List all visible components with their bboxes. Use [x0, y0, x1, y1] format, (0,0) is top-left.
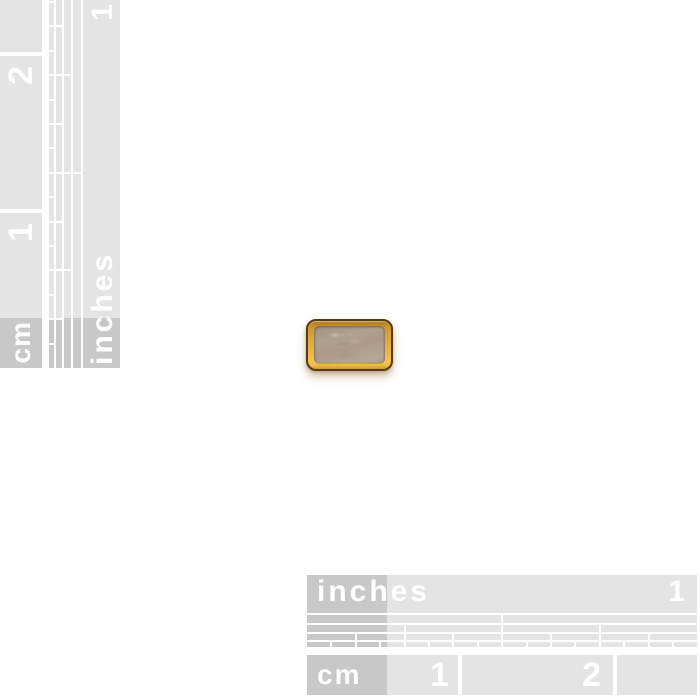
tick-mark	[49, 221, 64, 223]
rail-line	[54, 0, 56, 368]
inch-number-label: 1	[668, 576, 685, 608]
tick-mark	[49, 343, 56, 345]
component-metal-lid	[314, 326, 385, 364]
tick-mark	[49, 25, 64, 27]
ruler-vertical-left: 2 1 cm inches 1	[0, 0, 120, 368]
tick-mark	[599, 624, 601, 647]
rail-line	[71, 0, 73, 368]
inches-unit-label: inches	[317, 576, 430, 608]
tick-mark	[550, 633, 552, 647]
rail-line	[81, 0, 83, 368]
tick-mark	[404, 624, 406, 647]
tick-mark	[452, 633, 454, 647]
inch-number-label: 1	[85, 0, 120, 368]
tick-mark	[379, 641, 381, 647]
tick-mark	[49, 123, 64, 125]
product-photo-canvas: 2 1 cm inches 1 inches 1 cm 1 2	[0, 0, 700, 700]
cm-number-label: 2	[0, 56, 42, 209]
ruler-cm-block	[0, 0, 42, 52]
tick-mark	[672, 641, 674, 647]
cm-number-label: 1	[307, 655, 458, 695]
tick-mark	[49, 196, 56, 198]
tick-mark	[574, 641, 576, 647]
tick-mark	[330, 641, 332, 647]
cm-unit-label: cm	[0, 318, 42, 368]
cm-number-label: 2	[462, 655, 613, 695]
tick-mark	[49, 50, 56, 52]
tick-mark	[355, 633, 357, 647]
smd-crystal-component	[306, 319, 393, 371]
tick-mark	[501, 614, 503, 647]
tick-mark	[49, 74, 73, 76]
tick-mark	[49, 172, 83, 174]
tick-mark	[49, 99, 56, 101]
ruler-horizontal-bottom: inches 1 cm 1 2	[307, 575, 697, 695]
tick-mark	[648, 633, 650, 647]
tick-mark	[49, 147, 56, 149]
tick-mark	[477, 641, 479, 647]
tick-mark	[49, 1, 56, 3]
tick-mark	[49, 318, 64, 320]
tick-mark	[49, 269, 73, 271]
tick-mark	[49, 245, 56, 247]
tick-mark	[526, 641, 528, 647]
tick-mark	[428, 641, 430, 647]
ruler-cm-block	[617, 655, 697, 695]
lid-etched-marking	[324, 330, 366, 350]
tick-mark	[49, 294, 56, 296]
tick-mark	[623, 641, 625, 647]
rail-line	[62, 0, 64, 368]
